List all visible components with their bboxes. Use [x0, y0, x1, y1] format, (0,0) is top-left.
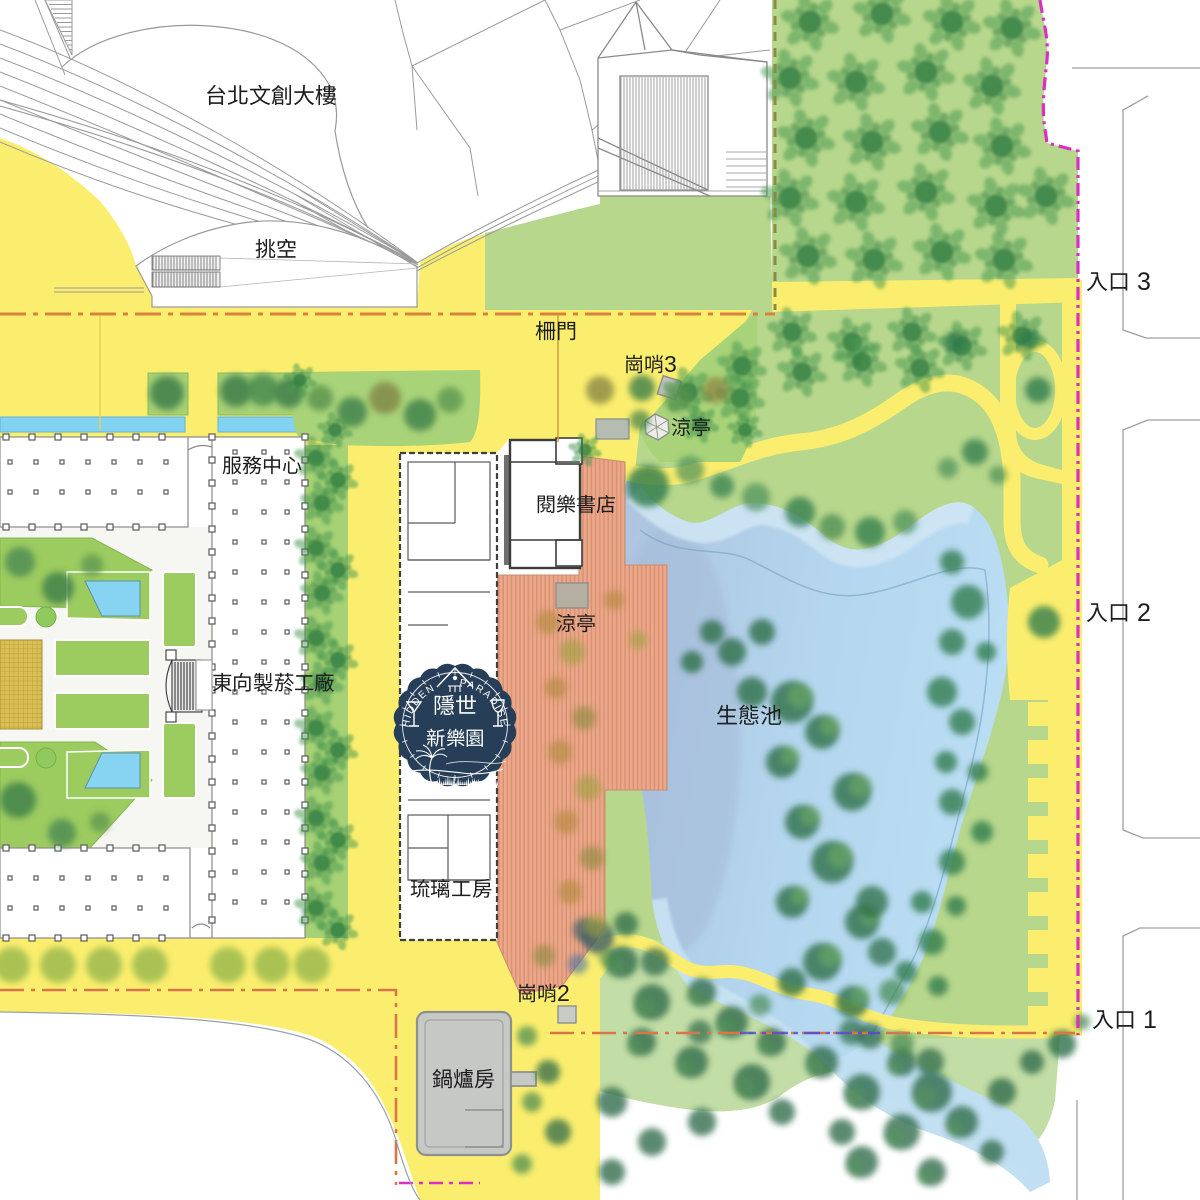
svg-text:2: 2: [557, 980, 570, 1006]
svg-text:1: 1: [1143, 1006, 1157, 1034]
svg-text:3: 3: [664, 351, 677, 377]
svg-text:2: 2: [1137, 599, 1151, 627]
svg-text:3: 3: [1137, 268, 1151, 296]
